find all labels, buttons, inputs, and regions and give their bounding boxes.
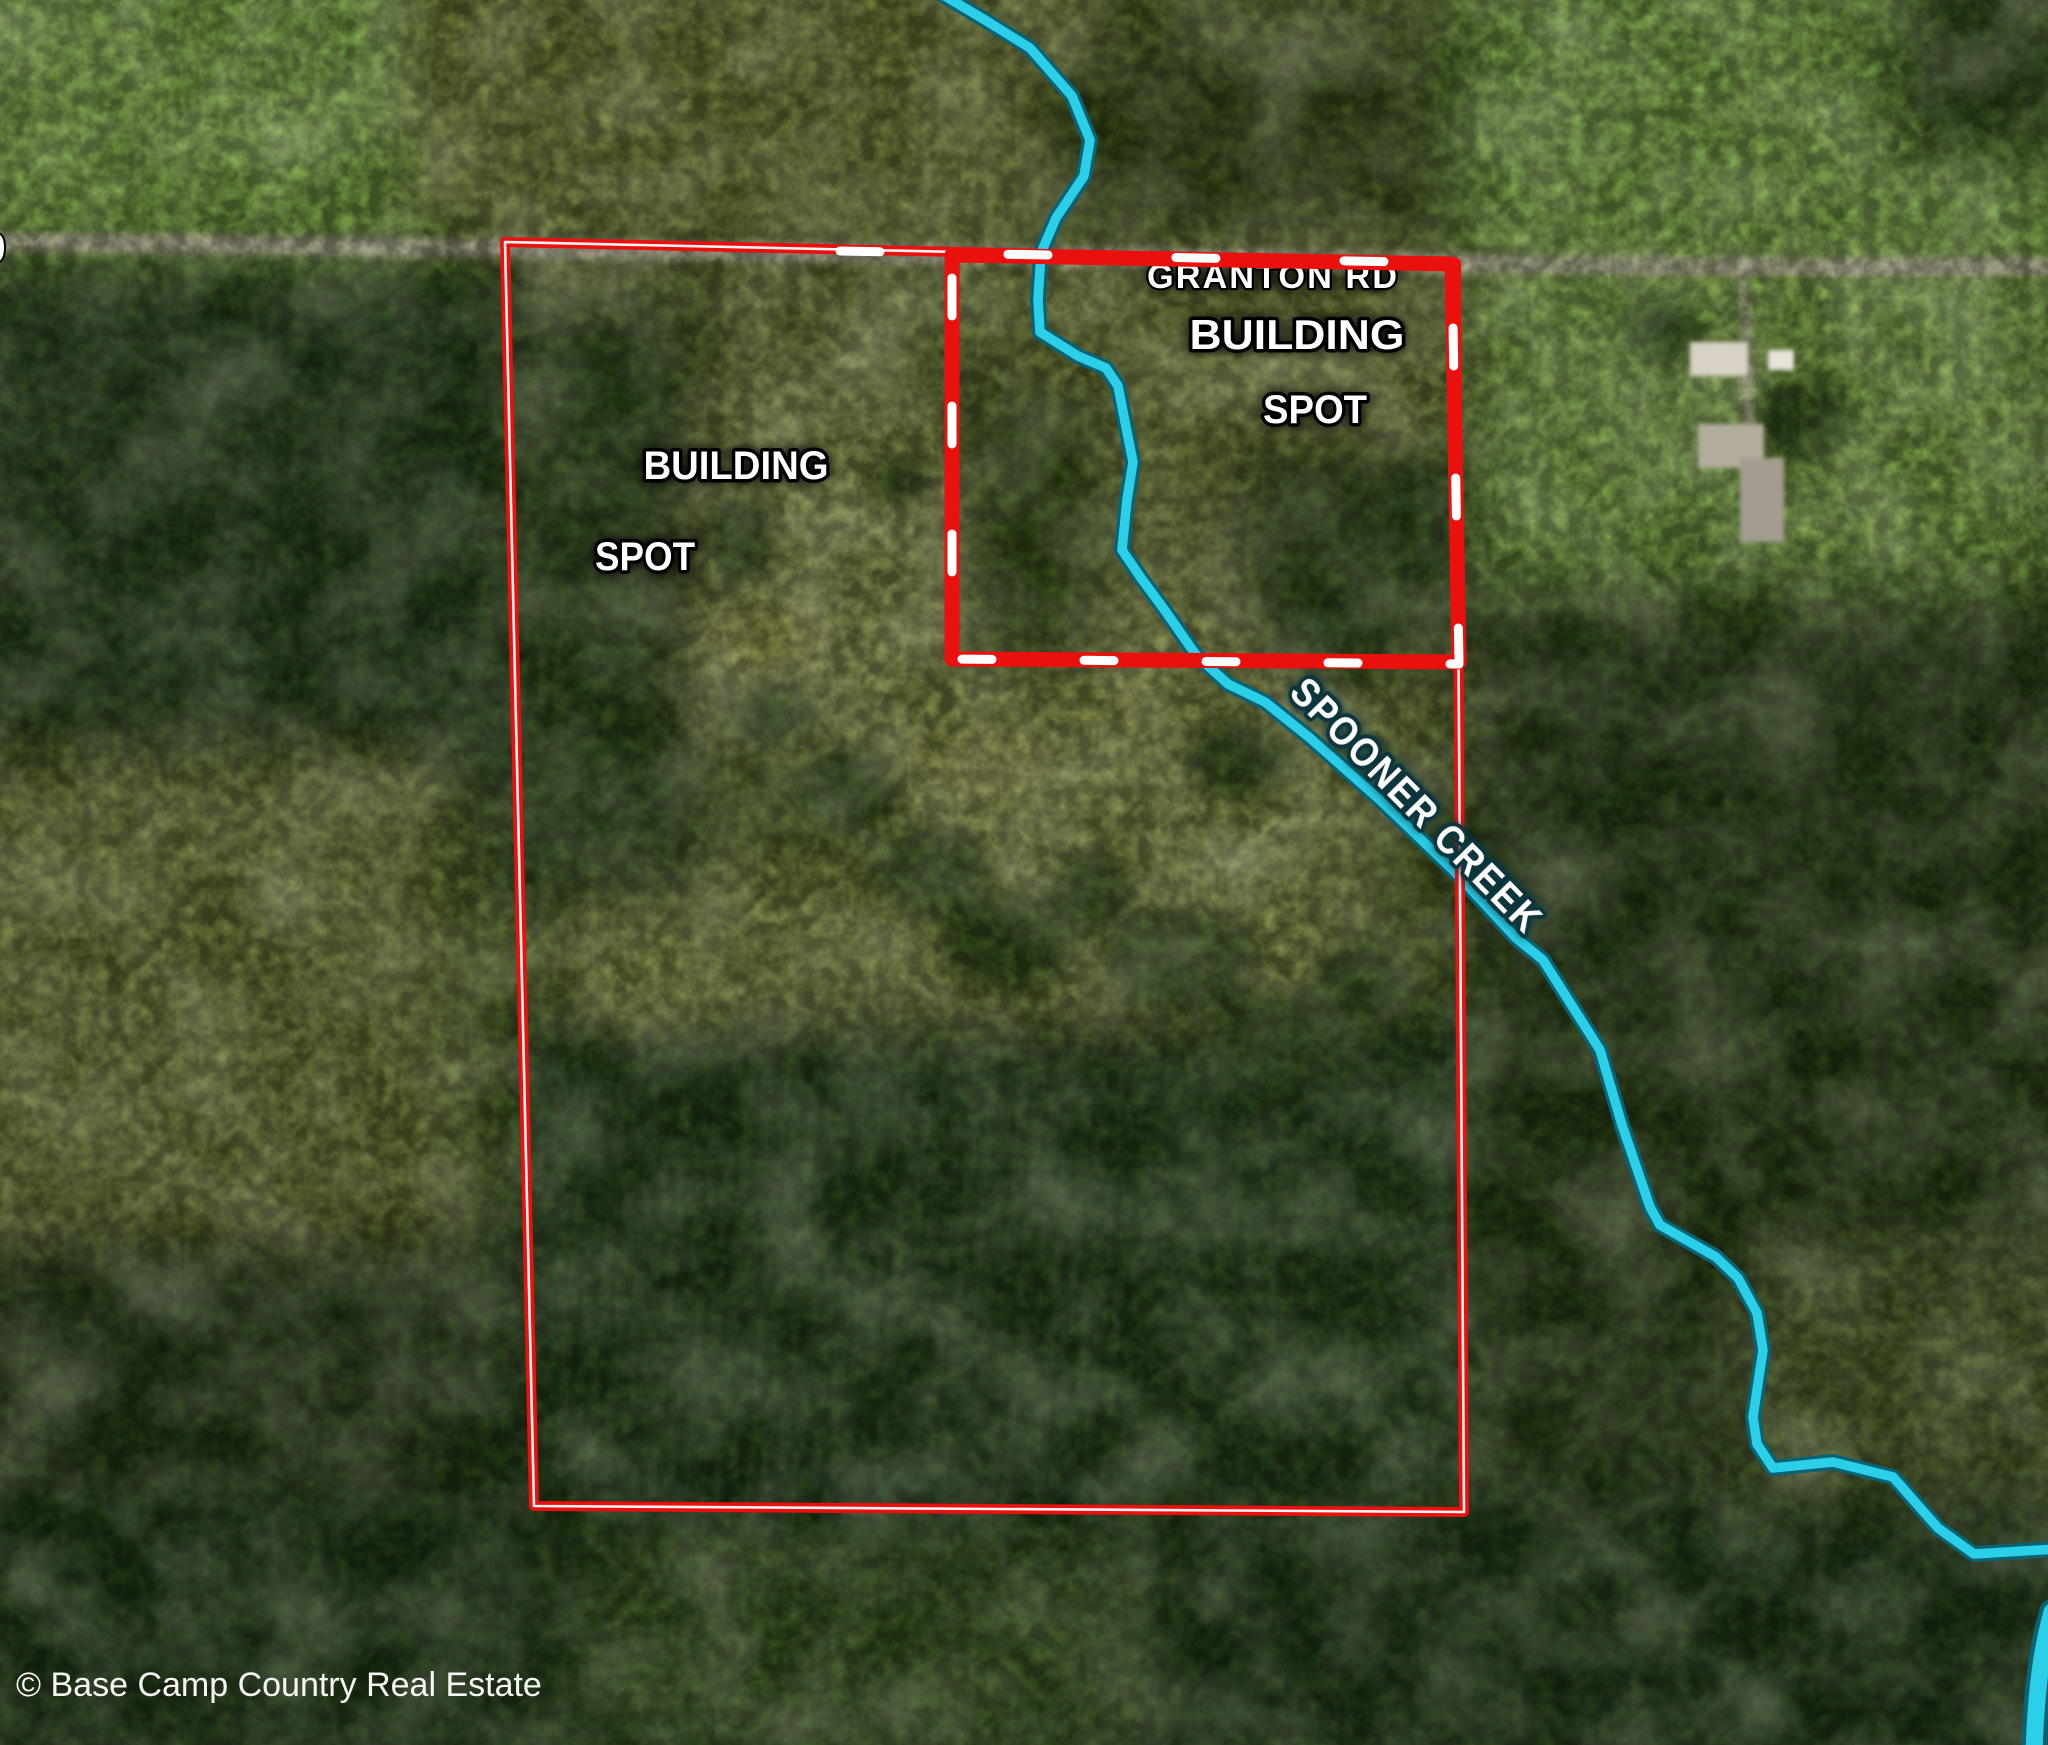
watermark: © Base Camp Country Real Estate [16, 1666, 542, 1704]
aerial-property-map: GRANTON RD 0 BUILDING SPOT BUILDING SPOT… [0, 0, 2048, 1745]
building-spot-left-line1: BUILDING [644, 444, 829, 488]
satellite-map-canvas: GRANTON RD 0 BUILDING SPOT BUILDING SPOT… [0, 0, 2048, 1745]
building-spot-right-line1: BUILDING [1190, 311, 1405, 358]
building-spot-right-line2: SPOT [1263, 388, 1367, 432]
building-spot-left-line2: SPOT [595, 535, 695, 579]
edge-partial-road-label: 0 [0, 224, 6, 271]
